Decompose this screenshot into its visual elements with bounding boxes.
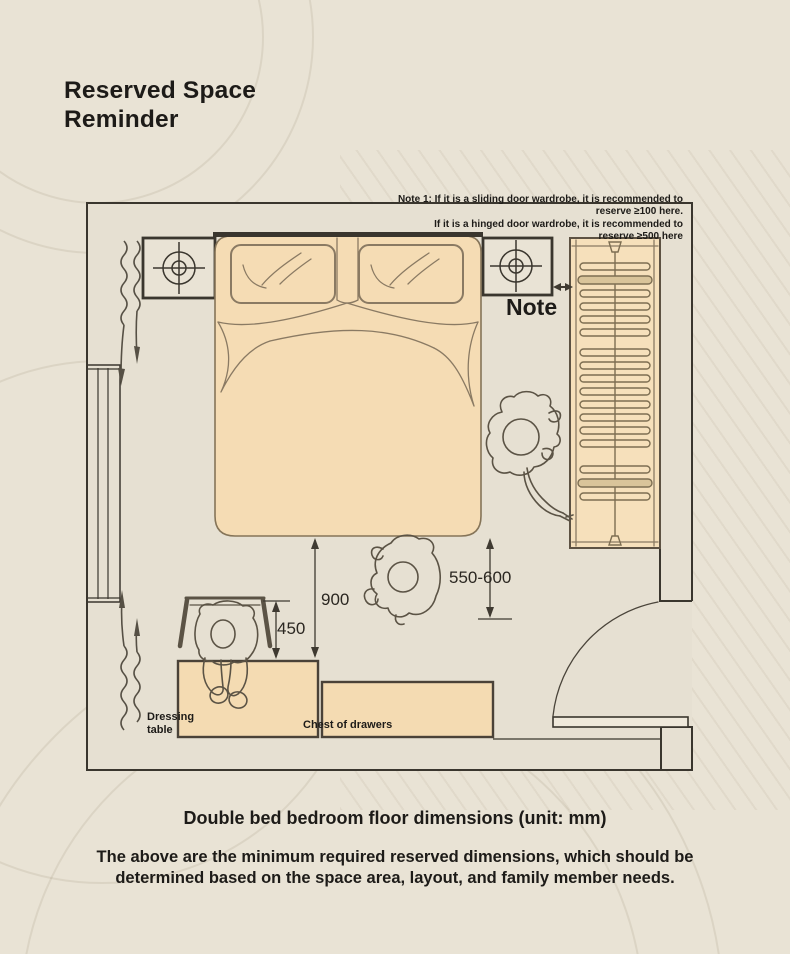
note-text: Note 1: If it is a sliding door wardrobe… [373, 194, 683, 243]
nightstand-right [483, 238, 552, 295]
dimension-label-900: 900 [321, 590, 349, 610]
double-bed [213, 232, 483, 536]
page-title: Reserved Space Reminder [64, 76, 384, 134]
nightstand-left [143, 238, 215, 298]
door-leaf [553, 717, 688, 727]
dimension-label-450: 450 [277, 619, 305, 639]
wardrobe [570, 238, 660, 548]
hanger [578, 276, 652, 284]
chest-of-drawers-label: Chest of drawers [303, 719, 392, 732]
infographic-page: Reserved Space Reminder Note 1: If it is… [0, 0, 790, 954]
footnote-text: The above are the minimum required reser… [0, 847, 790, 889]
hanger [578, 479, 652, 487]
diagram-caption: Double bed bedroom floor dimensions (uni… [0, 808, 790, 829]
dimension-label-550-600: 550-600 [449, 568, 511, 588]
dressing-table-label: Dressing table [147, 711, 194, 736]
note-label: Note [506, 294, 557, 321]
